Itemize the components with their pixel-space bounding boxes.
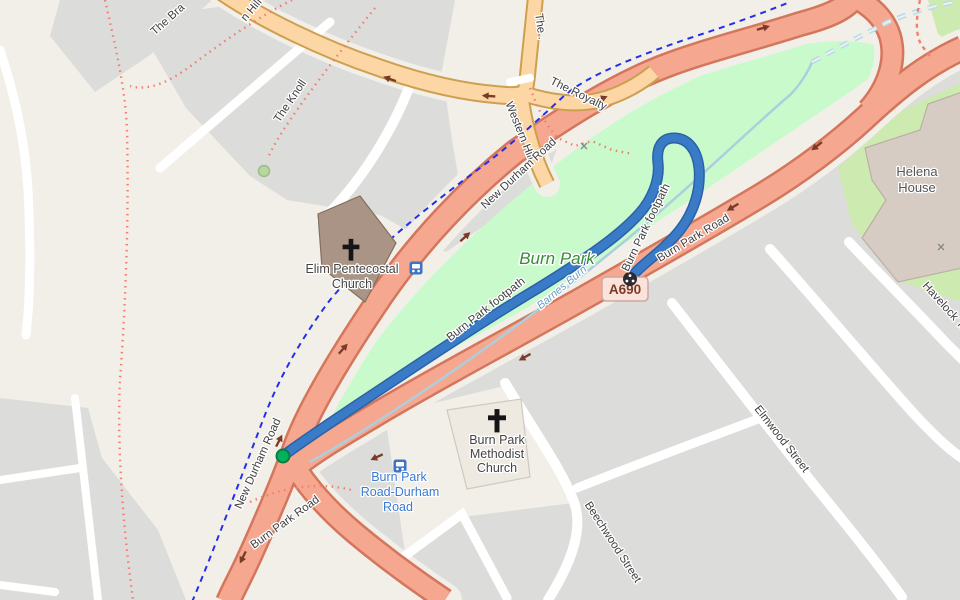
bus-stop-label: Burn Park [371,470,427,484]
poi-label-methodist-church: Burn Park [469,433,525,447]
map-svg[interactable]: A690 The Bra n Hill The Knoll The . The … [0,0,960,600]
route-start-marker[interactable] [277,450,290,463]
tree-icon [259,166,270,177]
road-ref-label: A690 [609,282,641,297]
park-label: Burn Park [519,249,596,268]
poi-label-elim-church-2: Church [332,277,372,291]
poi-label-elim-church: Elim Pentecostal [305,262,398,276]
poi-label-methodist-church-2: Methodist [470,447,525,461]
poi-label-methodist-church-3: Church [477,461,517,475]
building-label-helena-house-2: House [898,180,936,195]
map-canvas[interactable]: A690 The Bra n Hill The Knoll The . The … [0,0,960,600]
bus-stop-label-3: Road [383,500,413,514]
building-label-helena-house: Helena [896,164,938,179]
bus-stop-icon [410,262,423,275]
bus-stop-label-2: Road-Durham [361,485,440,499]
